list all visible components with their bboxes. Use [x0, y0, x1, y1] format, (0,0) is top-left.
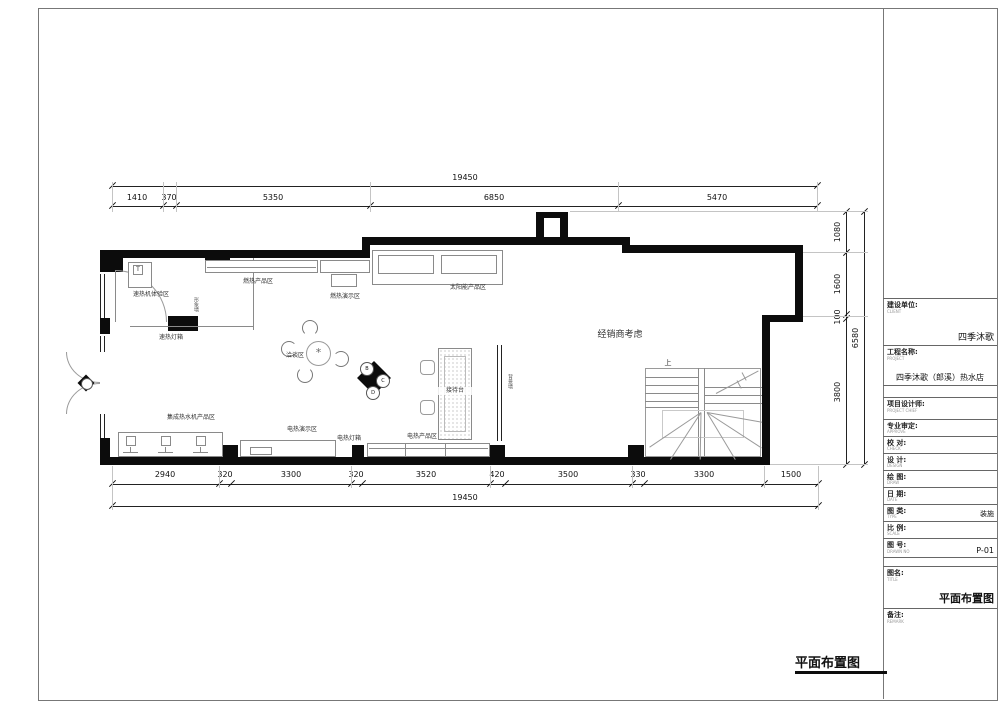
dim-top-total: 19450 — [430, 173, 500, 183]
dim-top-1: 370 — [149, 193, 189, 203]
wall-segment — [362, 237, 630, 245]
field-value: P-01 — [976, 546, 994, 555]
wall-segment — [762, 315, 770, 465]
dim-bottom-2: 3300 — [271, 470, 311, 480]
column — [628, 445, 644, 462]
stair-tread — [645, 407, 698, 408]
dim-top-4: 5470 — [697, 193, 737, 203]
cabinet-line — [369, 448, 488, 449]
dimension-line — [112, 506, 818, 507]
zone-label-electric-demo: 电热演示区 — [262, 426, 342, 434]
field-sublabel: REMARK — [887, 619, 904, 624]
field-sublabel: DRAW — [887, 480, 899, 485]
dim-right-3: 3800 — [833, 372, 843, 412]
title-block-row-number: 图 号: DRAWN NO P-01 — [883, 538, 997, 557]
zone-label-electric-lightbox: 电热灯箱 — [328, 435, 370, 443]
column — [490, 445, 505, 462]
field-value: 装施 — [980, 509, 994, 519]
field-sublabel: SCALE — [887, 531, 900, 536]
stair-tread — [645, 385, 698, 386]
elevation-letter-d: D — [366, 386, 380, 400]
elevation-marker-circle — [81, 378, 93, 390]
dim-bottom-4: 3520 — [406, 470, 446, 480]
dim-right-total: 6580 — [851, 318, 861, 358]
equipment-tag: T — [133, 266, 143, 274]
window — [100, 274, 105, 318]
cabinet-divider — [445, 444, 446, 456]
field-sublabel: PROJECT — [887, 356, 904, 361]
chair — [420, 400, 435, 415]
extension-line — [632, 466, 633, 488]
wall-segment — [100, 250, 370, 258]
zone-label-reception: 接待台 — [438, 387, 472, 395]
wall-segment — [100, 318, 110, 334]
dim-bottom-3: 320 — [336, 470, 376, 480]
stair-tread — [705, 403, 762, 404]
stair-tread — [645, 377, 698, 378]
unit-base — [123, 452, 138, 453]
field-sublabel: DATE — [887, 497, 897, 502]
cabinet-gas-demo — [320, 260, 370, 273]
field-value: 四季沐歌 — [958, 330, 994, 343]
wall-segment — [100, 438, 110, 465]
stair-tread — [645, 401, 698, 402]
wall-bump-cap — [536, 212, 568, 218]
dimension-line — [864, 212, 865, 465]
window — [100, 414, 105, 438]
wall-note-image-wall: 形象墙 — [188, 297, 198, 325]
zone-label-lightbox-left: 速热灯箱 — [150, 334, 192, 342]
partition-wall — [130, 326, 254, 327]
stair-up-label: 上 — [660, 359, 676, 368]
cabinet-line — [207, 267, 316, 268]
sheet-title-underline — [795, 671, 887, 674]
elevation-letter-b: B — [360, 362, 374, 376]
dimension-line — [112, 186, 818, 187]
dim-bottom-9: 1500 — [771, 470, 811, 480]
title-block-row-title: 图名: TITLE 平面布置图 — [883, 566, 997, 608]
extension-line — [818, 466, 819, 510]
cabinet-electric-demo-unit — [250, 447, 272, 455]
wall-segment — [622, 245, 803, 253]
dim-top-3: 6850 — [474, 193, 514, 203]
dim-bottom-1: 320 — [205, 470, 245, 480]
extension-line — [570, 211, 868, 212]
feature-wall — [497, 345, 502, 441]
field-sublabel: TYPE — [887, 514, 897, 519]
extension-line — [351, 466, 352, 488]
cabinet-gas-demo-unit — [331, 274, 357, 287]
dim-bottom-8: 3300 — [684, 470, 724, 480]
title-block-row-type: 图 类: TYPE 装施 — [883, 504, 997, 521]
field-sublabel: DRAWN NO — [887, 549, 910, 554]
stair-tread — [705, 387, 762, 388]
extension-line — [370, 182, 371, 212]
drawing-sheet: T 速热机体验区 形象墙 速热灯箱 燃热产品区 燃热演示区 太阳能产品区 * 洽… — [0, 0, 1000, 707]
wall-segment — [795, 245, 803, 322]
dim-bottom-5: 420 — [477, 470, 517, 480]
chair — [302, 320, 318, 336]
extension-line — [803, 316, 868, 317]
extension-line — [163, 182, 164, 212]
extension-line — [817, 182, 818, 212]
chair — [297, 367, 313, 383]
dim-bottom-7: 330 — [618, 470, 658, 480]
column — [222, 445, 238, 461]
stair-tread — [645, 393, 698, 394]
extension-line — [618, 182, 619, 212]
title-block-row-designer: 项目设计师: PROJECT CHIEF — [883, 397, 997, 419]
extension-line — [490, 466, 491, 488]
column — [352, 445, 364, 462]
title-block-row-check: 校 对: CHECK — [883, 436, 997, 453]
extension-line — [112, 466, 113, 510]
unit-base — [193, 452, 208, 453]
title-block-row-spacer — [883, 385, 997, 397]
chair — [333, 351, 349, 367]
zone-label-gas-products: 燃热产品区 — [218, 278, 298, 286]
dim-bottom-6: 3500 — [548, 470, 588, 480]
cabinet-divider — [405, 444, 406, 456]
unit-symbol — [161, 436, 171, 446]
field-sublabel: PROJECT CHIEF — [887, 408, 917, 413]
extension-line — [112, 182, 113, 212]
extension-line — [803, 252, 868, 253]
dim-right-0: 1080 — [833, 212, 843, 252]
window — [100, 336, 105, 352]
field-sublabel: CLIENT — [887, 309, 901, 314]
title-block-row-spacer — [883, 557, 997, 566]
dim-top-2: 5350 — [253, 193, 293, 203]
stair-landing — [662, 410, 744, 438]
field-value: 平面布置图 — [939, 590, 994, 606]
title-block-row-draw: 绘 图: DRAW — [883, 470, 997, 487]
extension-line — [219, 466, 220, 488]
wall-notch — [765, 315, 803, 322]
title-block-row-design: 设 计: DESIGN — [883, 453, 997, 470]
unit-base — [158, 452, 173, 453]
unit-symbol — [196, 436, 206, 446]
stair-tread — [705, 395, 762, 396]
zone-label-experience: 速热机体验区 — [112, 291, 190, 299]
extension-line — [764, 466, 765, 488]
title-block-row-scale: 比 例: SCALE — [883, 521, 997, 538]
field-sublabel: CHECK — [887, 446, 901, 451]
zone-label-electric-products: 电热产品区 — [382, 433, 462, 441]
title-block: 建设单位: CLIENT 四季沐歌 工程名称: PROJECT 四季沐歌（郎溪）… — [883, 298, 997, 699]
dealer-note: 经销商考虑 — [578, 327, 662, 340]
title-block-row-project: 工程名称: PROJECT 四季沐歌（郎溪）热水店 — [883, 345, 997, 385]
dim-bottom-0: 2940 — [145, 470, 185, 480]
wall-note-background-wall: 背景墙 — [503, 374, 512, 402]
cabinet-electric-products — [367, 443, 490, 457]
title-block-row-remark: 备注: REMARK — [883, 608, 997, 699]
unit-symbol — [126, 436, 136, 446]
title-block-row-approve: 专业审定: APPROVE — [883, 419, 997, 436]
plant-icon: * — [306, 346, 331, 360]
zone-label-solar: 太阳能产品区 — [428, 284, 508, 292]
cabinet-solar-unit — [378, 255, 434, 274]
field-sublabel: TITLE — [887, 577, 898, 582]
chair — [420, 360, 435, 375]
zone-label-integrated: 集成热水机产品区 — [150, 414, 232, 422]
title-block-row-date: 日 期: DATE — [883, 487, 997, 504]
extension-line — [176, 182, 177, 212]
dimension-line — [112, 206, 818, 207]
elevation-letter-c: C — [376, 374, 390, 388]
sheet-title-annotation: 平面布置图 — [795, 652, 883, 671]
title-block-row-client: 建设单位: CLIENT 四季沐歌 — [883, 298, 997, 345]
extension-line — [770, 464, 868, 465]
field-sublabel: DESIGN — [887, 463, 902, 468]
zone-label-negotiation: 洽谈区 — [258, 352, 304, 360]
dim-right-2: 100 — [833, 297, 843, 337]
field-sublabel: APPROVE — [887, 429, 906, 434]
dim-bottom-total: 19450 — [430, 493, 500, 503]
field-value: 四季沐歌（郎溪）热水店 — [885, 372, 995, 383]
zone-label-gas-demo: 燃热演示区 — [305, 293, 385, 301]
cabinet-solar-unit — [441, 255, 497, 274]
